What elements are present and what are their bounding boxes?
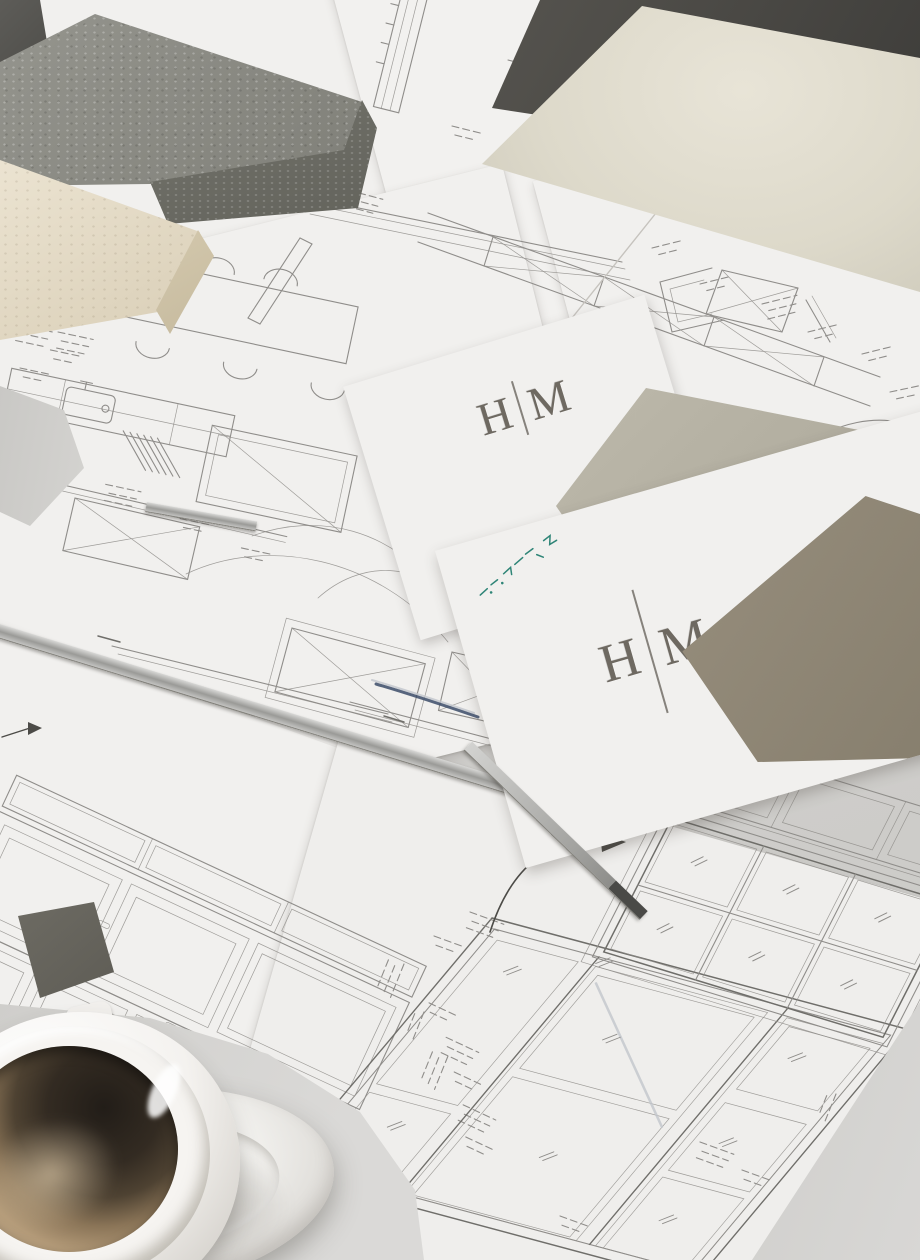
logo-letter-m: M (522, 368, 577, 431)
hm-logo-1: H M (471, 366, 577, 447)
flatlay-photo: H M H M (0, 0, 920, 1260)
logo-letter-h: H (592, 625, 647, 695)
column-detail (366, 0, 428, 113)
logo-letter-h: H (471, 386, 518, 446)
